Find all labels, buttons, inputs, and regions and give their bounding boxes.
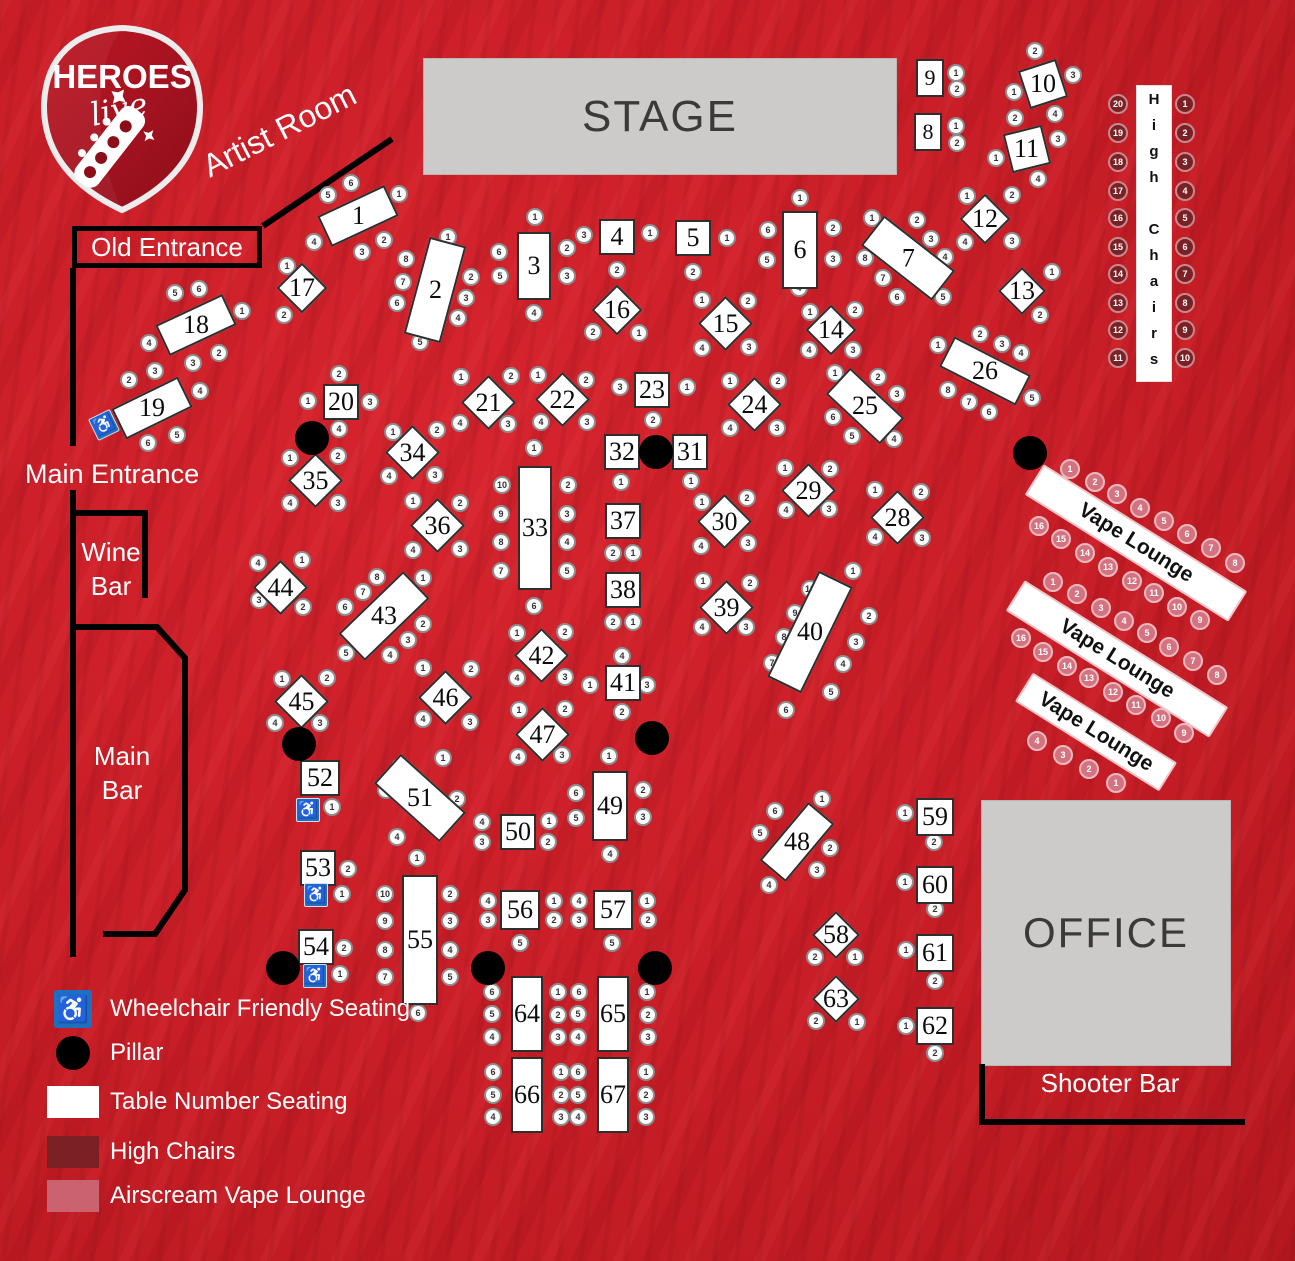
highchair-seat-19[interactable]: 19 (1108, 123, 1128, 143)
seat-26-7[interactable]: 7 (960, 393, 978, 411)
seat-24-4[interactable]: 4 (721, 419, 739, 437)
seat-23-3[interactable]: 3 (611, 378, 629, 396)
seat-26-6[interactable]: 6 (980, 403, 998, 421)
seat-1-3[interactable]: 3 (353, 243, 371, 261)
seat-34-2[interactable]: 2 (428, 421, 446, 439)
seat-6-6[interactable]: 6 (759, 221, 777, 239)
seat-20-2[interactable]: 2 (330, 365, 348, 383)
seat-3-2[interactable]: 2 (558, 239, 576, 257)
seat-8-2[interactable]: 2 (948, 134, 966, 152)
seat-66-3[interactable]: 3 (552, 1108, 570, 1126)
vape-seat-3-3[interactable]: 3 (1053, 745, 1073, 765)
seat-67-6[interactable]: 6 (569, 1063, 587, 1081)
highchair-seat-2[interactable]: 2 (1175, 123, 1195, 143)
vape-seat-1-10[interactable]: 10 (1167, 597, 1187, 617)
seat-18-4[interactable]: 4 (140, 334, 158, 352)
vape-seat-2-4[interactable]: 4 (1114, 611, 1134, 631)
vape-seat-2-3[interactable]: 3 (1091, 598, 1111, 618)
seat-2-2[interactable]: 2 (462, 268, 480, 286)
seat-46-2[interactable]: 2 (462, 660, 480, 678)
table-61[interactable]: 61 (916, 934, 954, 972)
vape-seat-1-4[interactable]: 4 (1130, 498, 1150, 518)
seat-6-5[interactable]: 5 (758, 251, 776, 269)
seat-24-1[interactable]: 1 (721, 372, 739, 390)
vape-seat-1-2[interactable]: 2 (1085, 472, 1105, 492)
vape-seat-1-15[interactable]: 15 (1051, 529, 1071, 549)
seat-55-7[interactable]: 7 (376, 968, 394, 986)
table-55[interactable]: 55 (402, 875, 438, 1005)
seat-56-1[interactable]: 1 (545, 892, 563, 910)
seat-19-2[interactable]: 2 (120, 371, 138, 389)
vape-seat-1-9[interactable]: 9 (1190, 610, 1210, 630)
vape-seat-1-7[interactable]: 7 (1201, 538, 1221, 558)
seat-28-2[interactable]: 2 (912, 483, 930, 501)
seat-50-4[interactable]: 4 (473, 813, 491, 831)
seat-33-7[interactable]: 7 (492, 562, 510, 580)
seat-64-1[interactable]: 1 (549, 983, 567, 1001)
highchair-seat-3[interactable]: 3 (1175, 152, 1195, 172)
seat-46-4[interactable]: 4 (414, 710, 432, 728)
seat-33-8[interactable]: 8 (492, 533, 510, 551)
vape-seat-2-16[interactable]: 16 (1011, 628, 1031, 648)
seat-6-1[interactable]: 1 (791, 189, 809, 207)
seat-25-2[interactable]: 2 (869, 368, 887, 386)
seat-51-1[interactable]: 1 (434, 749, 452, 767)
seat-16-2[interactable]: 2 (584, 323, 602, 341)
highchair-seat-11[interactable]: 11 (1108, 348, 1128, 368)
seat-48-1[interactable]: 1 (813, 790, 831, 808)
seat-2-7[interactable]: 7 (394, 273, 412, 291)
table-8[interactable]: 8 (914, 113, 942, 151)
seat-34-4[interactable]: 4 (380, 467, 398, 485)
seat-55-9[interactable]: 9 (376, 912, 394, 930)
highchair-seat-14[interactable]: 14 (1108, 264, 1128, 284)
seat-4-1[interactable]: 1 (641, 224, 659, 242)
seat-33-10[interactable]: 10 (493, 476, 511, 494)
vape-seat-1-14[interactable]: 14 (1075, 543, 1095, 563)
seat-10-2[interactable]: 2 (1026, 42, 1044, 60)
seat-40-1[interactable]: 1 (844, 562, 862, 580)
seat-66-6[interactable]: 6 (484, 1063, 502, 1081)
seat-20-1[interactable]: 1 (299, 392, 317, 410)
highchair-seat-6[interactable]: 6 (1175, 237, 1195, 257)
highchair-seat-9[interactable]: 9 (1175, 320, 1195, 340)
seat-49-5[interactable]: 5 (567, 809, 585, 827)
seat-55-3[interactable]: 3 (441, 912, 459, 930)
seat-36-3[interactable]: 3 (451, 540, 469, 558)
table-41[interactable]: 41 (605, 665, 641, 701)
seat-32-1[interactable]: 1 (612, 473, 630, 491)
seat-30-3[interactable]: 3 (739, 534, 757, 552)
seat-52-1[interactable]: 1 (323, 798, 341, 816)
seat-35-2[interactable]: 2 (329, 447, 347, 465)
seat-48-5[interactable]: 5 (751, 824, 769, 842)
seat-49-4[interactable]: 4 (601, 845, 619, 863)
seat-2-4[interactable]: 4 (449, 309, 467, 327)
seat-6-3[interactable]: 3 (824, 250, 842, 268)
seat-33-3[interactable]: 3 (558, 505, 576, 523)
table-31[interactable]: 31 (672, 434, 708, 470)
seat-57-4[interactable]: 4 (570, 892, 588, 910)
seat-18-1[interactable]: 1 (233, 302, 251, 320)
table-53[interactable]: 53 (300, 850, 336, 886)
seat-10-3[interactable]: 3 (1064, 66, 1082, 84)
vape-seat-1-12[interactable]: 12 (1122, 571, 1142, 591)
seat-41-4[interactable]: 4 (613, 647, 631, 665)
highchair-seat-10[interactable]: 10 (1175, 348, 1195, 368)
seat-3-5[interactable]: 5 (491, 267, 509, 285)
seat-33-9[interactable]: 9 (492, 505, 510, 523)
seat-66-2[interactable]: 2 (552, 1086, 570, 1104)
table-32[interactable]: 32 (604, 434, 640, 470)
seat-47-2[interactable]: 2 (556, 700, 574, 718)
seat-1-2[interactable]: 2 (375, 231, 393, 249)
seat-3-4[interactable]: 4 (525, 304, 543, 322)
table-38[interactable]: 38 (605, 572, 641, 608)
seat-29-2[interactable]: 2 (821, 460, 839, 478)
seat-12-2[interactable]: 2 (1003, 186, 1021, 204)
seat-55-5[interactable]: 5 (441, 968, 459, 986)
table-23[interactable]: 23 (634, 372, 670, 408)
seat-26-1[interactable]: 1 (929, 336, 947, 354)
seat-56-4[interactable]: 4 (479, 892, 497, 910)
seat-6-2[interactable]: 2 (824, 219, 842, 237)
seat-44-1[interactable]: 1 (293, 551, 311, 569)
seat-2-3[interactable]: 3 (457, 289, 475, 307)
seat-66-4[interactable]: 4 (484, 1108, 502, 1126)
vape-seat-3-2[interactable]: 2 (1079, 759, 1099, 779)
seat-53-1[interactable]: 1 (333, 885, 351, 903)
vape-seat-1-6[interactable]: 6 (1177, 524, 1197, 544)
seat-57-3[interactable]: 3 (570, 911, 588, 929)
seat-65-5[interactable]: 5 (569, 1005, 587, 1023)
seat-65-1[interactable]: 1 (638, 983, 656, 1001)
seat-50-1[interactable]: 1 (540, 812, 558, 830)
seat-20-4[interactable]: 4 (330, 420, 348, 438)
seat-19-6[interactable]: 6 (139, 434, 157, 452)
seat-42-3[interactable]: 3 (556, 668, 574, 686)
seat-33-5[interactable]: 5 (558, 562, 576, 580)
seat-64-2[interactable]: 2 (549, 1006, 567, 1024)
seat-46-1[interactable]: 1 (414, 659, 432, 677)
seat-36-1[interactable]: 1 (404, 492, 422, 510)
seat-67-1[interactable]: 1 (637, 1063, 655, 1081)
vape-seat-1-3[interactable]: 3 (1107, 484, 1127, 504)
highchair-seat-8[interactable]: 8 (1175, 293, 1195, 313)
seat-57-1[interactable]: 1 (638, 892, 656, 910)
seat-49-3[interactable]: 3 (634, 808, 652, 826)
vape-seat-2-5[interactable]: 5 (1137, 623, 1157, 643)
seat-33-4[interactable]: 4 (558, 533, 576, 551)
vape-seat-2-13[interactable]: 13 (1079, 668, 1099, 688)
seat-22-3[interactable]: 3 (578, 413, 596, 431)
seat-59-1[interactable]: 1 (896, 804, 914, 822)
seat-31-1[interactable]: 1 (682, 472, 700, 490)
seat-49-1[interactable]: 1 (600, 747, 618, 765)
seat-15-1[interactable]: 1 (693, 291, 711, 309)
high-chairs-bar[interactable]: High Chairs (1136, 85, 1172, 382)
vape-seat-2-1[interactable]: 1 (1043, 572, 1063, 592)
table-59[interactable]: 59 (916, 798, 954, 836)
seat-48-2[interactable]: 2 (821, 839, 839, 857)
vape-seat-2-11[interactable]: 11 (1126, 695, 1146, 715)
seat-51-4[interactable]: 4 (388, 828, 406, 846)
seat-4-3[interactable]: 3 (575, 226, 593, 244)
seat-8-1[interactable]: 1 (947, 117, 965, 135)
table-20[interactable]: 20 (323, 384, 359, 420)
seat-7-2[interactable]: 2 (908, 211, 926, 229)
seat-47-4[interactable]: 4 (509, 748, 527, 766)
table-57[interactable]: 57 (593, 890, 633, 930)
seat-62-1[interactable]: 1 (897, 1017, 915, 1035)
seat-37-2[interactable]: 2 (604, 544, 622, 562)
seat-1-6[interactable]: 6 (342, 174, 360, 192)
seat-64-4[interactable]: 4 (483, 1028, 501, 1046)
seat-7-3[interactable]: 3 (922, 230, 940, 248)
seat-53-2[interactable]: 2 (339, 860, 357, 878)
seat-55-6[interactable]: 6 (409, 1004, 427, 1022)
seat-44-2[interactable]: 2 (294, 598, 312, 616)
seat-67-4[interactable]: 4 (569, 1108, 587, 1126)
seat-21-4[interactable]: 4 (451, 414, 469, 432)
seat-39-4[interactable]: 4 (693, 618, 711, 636)
seat-5-2[interactable]: 2 (684, 263, 702, 281)
seat-21-2[interactable]: 2 (502, 367, 520, 385)
highchair-seat-17[interactable]: 17 (1108, 181, 1128, 201)
wheelchair-seat-marker[interactable]: ♿ (304, 883, 328, 907)
seat-22-4[interactable]: 4 (532, 413, 550, 431)
seat-67-3[interactable]: 3 (637, 1108, 655, 1126)
seat-42-1[interactable]: 1 (508, 624, 526, 642)
seat-18-5[interactable]: 5 (166, 284, 184, 302)
seat-40-5[interactable]: 5 (822, 683, 840, 701)
vape-seat-2-14[interactable]: 14 (1057, 656, 1077, 676)
vape-seat-1-16[interactable]: 16 (1029, 516, 1049, 536)
seat-18-2[interactable]: 2 (210, 344, 228, 362)
seat-61-1[interactable]: 1 (897, 941, 915, 959)
seat-63-2[interactable]: 2 (807, 1012, 825, 1030)
seat-14-4[interactable]: 4 (800, 341, 818, 359)
seat-1-4[interactable]: 4 (305, 233, 323, 251)
seat-42-2[interactable]: 2 (556, 623, 574, 641)
seat-45-4[interactable]: 4 (266, 714, 284, 732)
seat-66-1[interactable]: 1 (552, 1063, 570, 1081)
table-65[interactable]: 65 (597, 976, 629, 1052)
seat-66-5[interactable]: 5 (484, 1086, 502, 1104)
seat-30-2[interactable]: 2 (738, 489, 756, 507)
seat-25-5[interactable]: 5 (843, 427, 861, 445)
highchair-seat-5[interactable]: 5 (1175, 208, 1195, 228)
seat-4-2[interactable]: 2 (608, 261, 626, 279)
seat-67-5[interactable]: 5 (569, 1086, 587, 1104)
seat-25-3[interactable]: 3 (888, 385, 906, 403)
seat-19-4[interactable]: 4 (191, 382, 209, 400)
vape-seat-3-4[interactable]: 4 (1027, 731, 1047, 751)
seat-46-3[interactable]: 3 (461, 713, 479, 731)
highchair-seat-4[interactable]: 4 (1175, 181, 1195, 201)
seat-2-8[interactable]: 8 (397, 250, 415, 268)
seat-30-4[interactable]: 4 (692, 537, 710, 555)
seat-40-2[interactable]: 2 (860, 607, 878, 625)
seat-45-2[interactable]: 2 (318, 669, 336, 687)
seat-48-4[interactable]: 4 (760, 876, 778, 894)
seat-14-3[interactable]: 3 (844, 341, 862, 359)
seat-38-1[interactable]: 1 (624, 613, 642, 631)
seat-48-3[interactable]: 3 (808, 861, 826, 879)
seat-55-1[interactable]: 1 (408, 849, 426, 867)
seat-39-2[interactable]: 2 (741, 574, 759, 592)
highchair-seat-18[interactable]: 18 (1108, 152, 1128, 172)
seat-50-2[interactable]: 2 (539, 833, 557, 851)
seat-36-4[interactable]: 4 (404, 541, 422, 559)
seat-15-2[interactable]: 2 (739, 292, 757, 310)
seat-56-5[interactable]: 5 (511, 934, 529, 952)
seat-26-4[interactable]: 4 (1012, 344, 1030, 362)
seat-47-1[interactable]: 1 (510, 701, 528, 719)
seat-14-2[interactable]: 2 (846, 301, 864, 319)
table-60[interactable]: 60 (916, 866, 954, 904)
table-49[interactable]: 49 (592, 771, 628, 841)
seat-33-2[interactable]: 2 (559, 476, 577, 494)
vape-seat-2-15[interactable]: 15 (1033, 642, 1053, 662)
seat-28-3[interactable]: 3 (913, 529, 931, 547)
seat-15-3[interactable]: 3 (740, 338, 758, 356)
table-50[interactable]: 50 (500, 814, 536, 850)
seat-21-3[interactable]: 3 (499, 415, 517, 433)
table-67[interactable]: 67 (597, 1057, 629, 1133)
seat-13-2[interactable]: 2 (1031, 306, 1049, 324)
seat-15-4[interactable]: 4 (693, 339, 711, 357)
seat-1-1[interactable]: 1 (390, 185, 408, 203)
seat-62-2[interactable]: 2 (926, 1044, 944, 1062)
seat-20-3[interactable]: 3 (361, 393, 379, 411)
highchair-seat-13[interactable]: 13 (1108, 293, 1128, 313)
seat-43-2[interactable]: 2 (414, 615, 432, 633)
highchair-seat-1[interactable]: 1 (1175, 94, 1195, 114)
seat-35-1[interactable]: 1 (281, 449, 299, 467)
seat-67-2[interactable]: 2 (637, 1086, 655, 1104)
seat-58-1[interactable]: 1 (846, 948, 864, 966)
seat-18-3[interactable]: 3 (184, 354, 202, 372)
seat-41-2[interactable]: 2 (613, 703, 631, 721)
seat-26-3[interactable]: 3 (993, 335, 1011, 353)
vape-seat-2-7[interactable]: 7 (1183, 651, 1203, 671)
highchair-seat-15[interactable]: 15 (1108, 237, 1128, 257)
seat-40-6[interactable]: 6 (777, 701, 795, 719)
seat-7-7[interactable]: 7 (874, 269, 892, 287)
table-66[interactable]: 66 (511, 1057, 543, 1133)
wheelchair-seat-marker[interactable]: ♿ (296, 798, 320, 822)
highchair-seat-20[interactable]: 20 (1108, 94, 1128, 114)
seat-16-1[interactable]: 1 (630, 324, 648, 342)
seat-40-4[interactable]: 4 (834, 655, 852, 673)
seat-37-1[interactable]: 1 (624, 544, 642, 562)
seat-65-3[interactable]: 3 (639, 1028, 657, 1046)
seat-23-1[interactable]: 1 (678, 378, 696, 396)
seat-3-6[interactable]: 6 (490, 243, 508, 261)
highchair-seat-12[interactable]: 12 (1108, 320, 1128, 340)
seat-55-8[interactable]: 8 (376, 941, 394, 959)
seat-56-2[interactable]: 2 (545, 911, 563, 929)
seat-65-2[interactable]: 2 (639, 1006, 657, 1024)
seat-10-1[interactable]: 1 (1005, 83, 1023, 101)
seat-33-6[interactable]: 6 (525, 597, 543, 615)
seat-3-1[interactable]: 1 (526, 208, 544, 226)
seat-55-4[interactable]: 4 (441, 941, 459, 959)
seat-57-2[interactable]: 2 (639, 911, 657, 929)
table-4[interactable]: 4 (599, 219, 635, 255)
seat-41-1[interactable]: 1 (581, 676, 599, 694)
seat-12-3[interactable]: 3 (1003, 232, 1021, 250)
seat-26-5[interactable]: 5 (1023, 389, 1041, 407)
seat-11-2[interactable]: 2 (1006, 109, 1024, 127)
seat-38-2[interactable]: 2 (604, 613, 622, 631)
vape-seat-1-13[interactable]: 13 (1098, 557, 1118, 577)
table-5[interactable]: 5 (675, 220, 711, 256)
seat-55-10[interactable]: 10 (376, 885, 394, 903)
seat-10-4[interactable]: 4 (1046, 105, 1064, 123)
table-54[interactable]: 54 (298, 929, 334, 965)
seat-49-2[interactable]: 2 (634, 781, 652, 799)
seat-43-7[interactable]: 7 (354, 583, 372, 601)
seat-12-4[interactable]: 4 (956, 233, 974, 251)
table-56[interactable]: 56 (500, 890, 540, 930)
highchair-seat-7[interactable]: 7 (1175, 264, 1195, 284)
seat-26-8[interactable]: 8 (939, 381, 957, 399)
seat-11-1[interactable]: 1 (987, 149, 1005, 167)
seat-23-2[interactable]: 2 (644, 411, 662, 429)
seat-17-2[interactable]: 2 (275, 306, 293, 324)
seat-3-3[interactable]: 3 (558, 267, 576, 285)
seat-48-6[interactable]: 6 (766, 802, 784, 820)
seat-35-3[interactable]: 3 (329, 494, 347, 512)
seat-13-1[interactable]: 1 (1043, 263, 1061, 281)
seat-55-2[interactable]: 2 (441, 885, 459, 903)
seat-36-2[interactable]: 2 (451, 494, 469, 512)
wheelchair-seat-marker[interactable]: ♿ (303, 964, 327, 988)
seat-54-2[interactable]: 2 (335, 939, 353, 957)
seat-61-2[interactable]: 2 (926, 972, 944, 990)
table-52[interactable]: 52 (300, 760, 340, 796)
table-33[interactable]: 33 (518, 466, 552, 590)
seat-44-4[interactable]: 4 (249, 554, 267, 572)
seat-1-5[interactable]: 5 (319, 186, 337, 204)
seat-2-6[interactable]: 6 (388, 294, 406, 312)
vape-seat-2-12[interactable]: 12 (1103, 682, 1123, 702)
vape-seat-3-1[interactable]: 1 (1106, 773, 1126, 793)
seat-18-6[interactable]: 6 (190, 280, 208, 298)
seat-33-1[interactable]: 1 (525, 439, 543, 457)
seat-25-6[interactable]: 6 (824, 408, 842, 426)
vape-seat-2-2[interactable]: 2 (1067, 584, 1087, 604)
table-9[interactable]: 9 (916, 59, 944, 97)
highchair-seat-16[interactable]: 16 (1108, 208, 1128, 228)
seat-11-3[interactable]: 3 (1049, 130, 1067, 148)
seat-19-5[interactable]: 5 (168, 426, 186, 444)
seat-57-5[interactable]: 5 (603, 934, 621, 952)
seat-26-2[interactable]: 2 (971, 325, 989, 343)
seat-22-2[interactable]: 2 (577, 371, 595, 389)
table-3[interactable]: 3 (517, 232, 551, 300)
seat-24-3[interactable]: 3 (768, 419, 786, 437)
seat-43-8[interactable]: 8 (368, 568, 386, 586)
seat-35-4[interactable]: 4 (281, 494, 299, 512)
vape-seat-1-8[interactable]: 8 (1225, 553, 1245, 573)
seat-54-1[interactable]: 1 (331, 965, 349, 983)
seat-5-1[interactable]: 1 (718, 229, 736, 247)
seat-64-6[interactable]: 6 (483, 983, 501, 1001)
seat-43-4[interactable]: 4 (381, 646, 399, 664)
